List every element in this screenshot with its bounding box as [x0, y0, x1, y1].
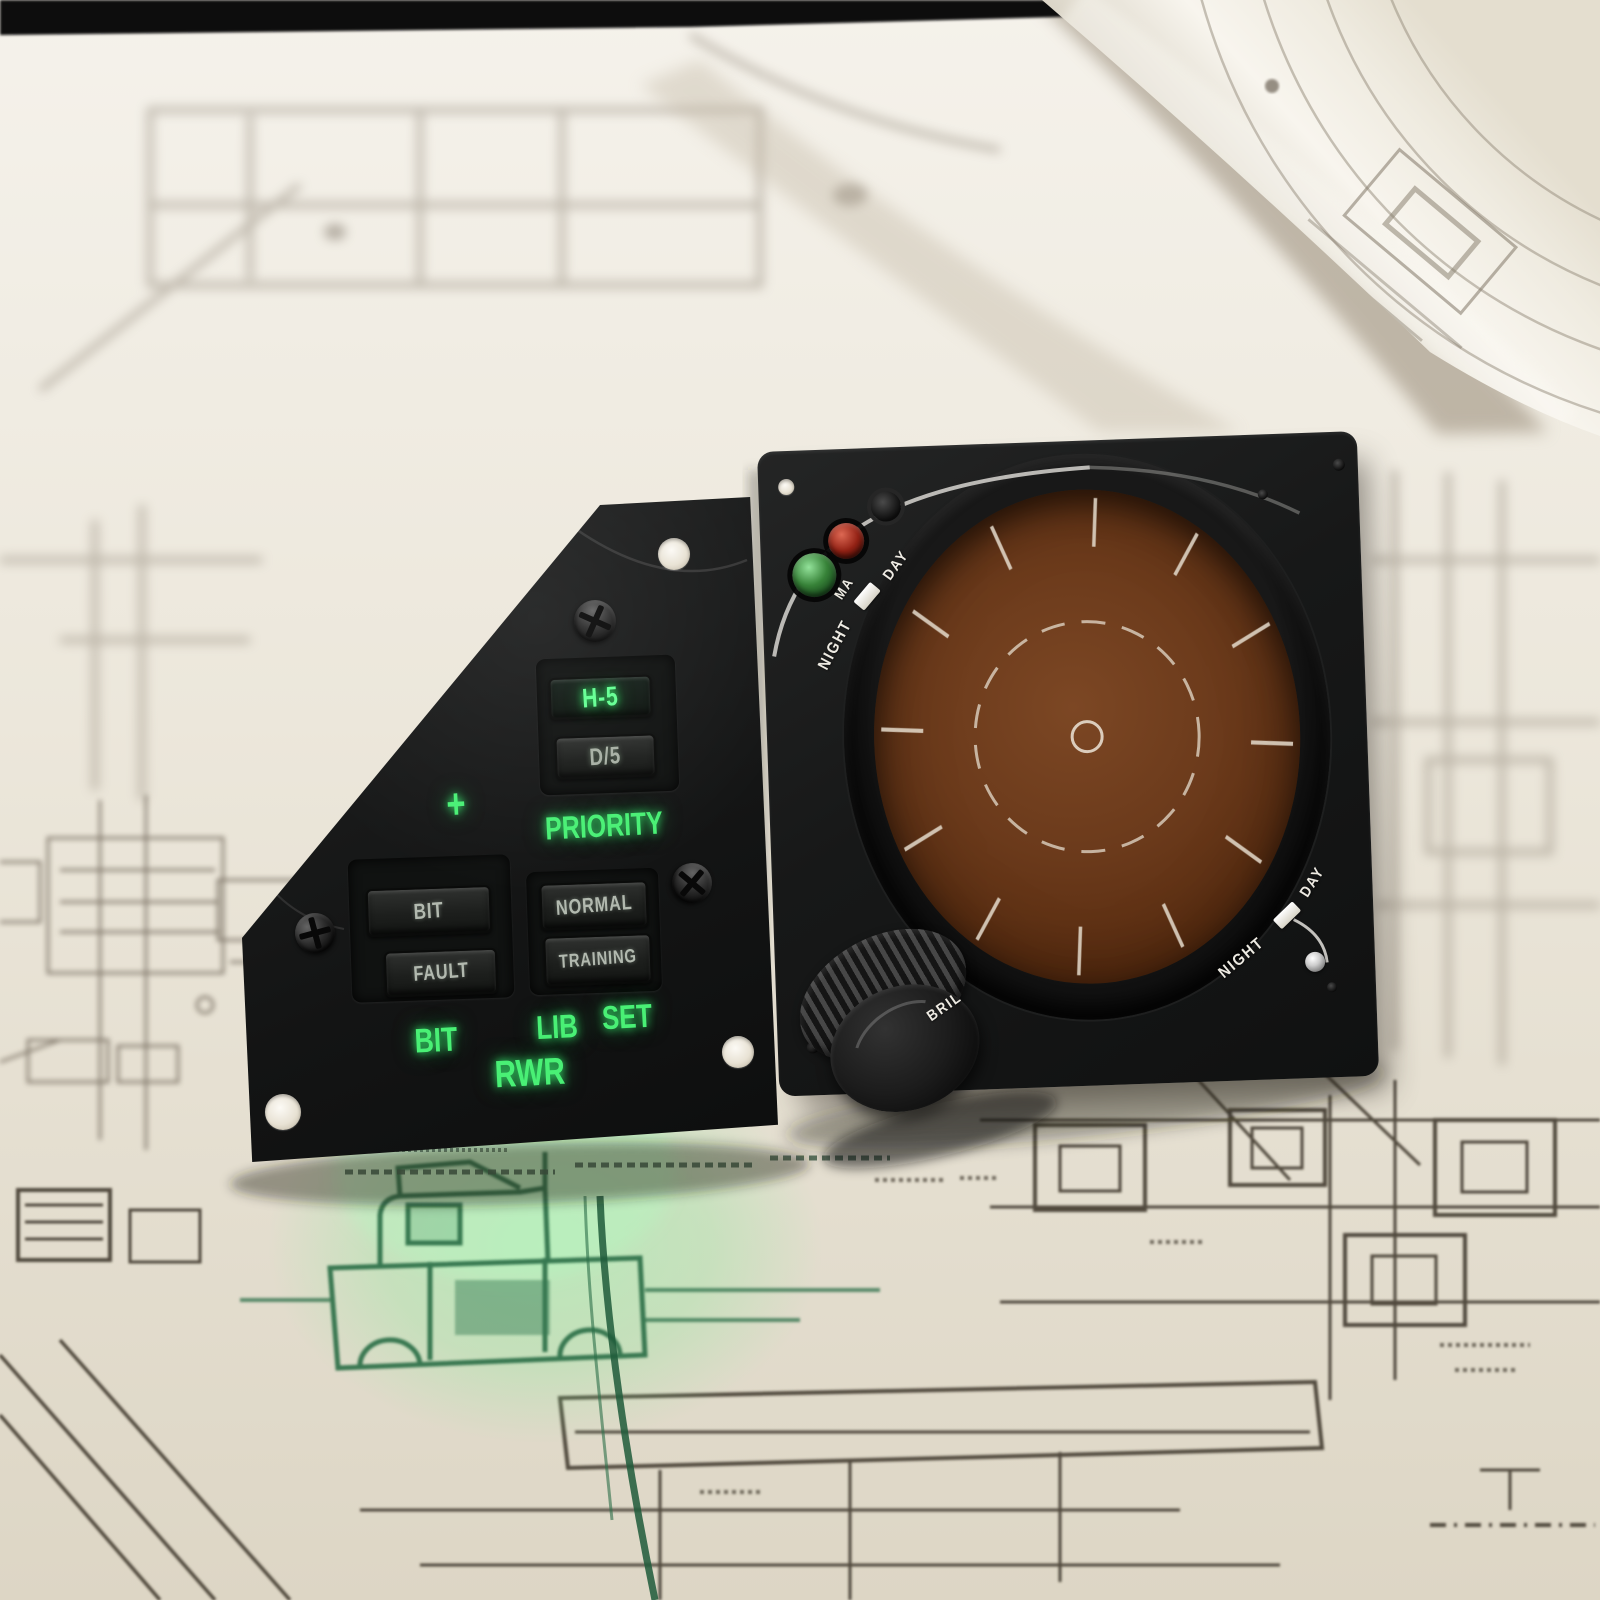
mounting-hole [658, 538, 690, 570]
phillips-screw [664, 855, 720, 911]
photo-scene: NIGHT MA DAY NIGHT DAY BRIL H-5 [0, 0, 1600, 1600]
secondary-display-value: D/5 [589, 741, 622, 771]
set-label: SET [601, 997, 653, 1038]
priority-display-value: H-5 [581, 680, 619, 714]
normal-training-recess: NORMAL TRAINING [526, 868, 662, 996]
bit-label: BIT [414, 1020, 459, 1061]
lib-label: LIB [535, 1007, 578, 1047]
bit-button[interactable]: BIT [366, 885, 493, 937]
normal-button[interactable]: NORMAL [539, 880, 649, 931]
priority-display-recess: H-5 D/5 [536, 655, 680, 796]
rwr-label: RWR [494, 1051, 566, 1098]
mounting-hole [265, 1094, 301, 1130]
azimuth-display-panel: NIGHT MA DAY NIGHT DAY BRIL [757, 431, 1379, 1097]
secondary-display-button[interactable]: D/5 [554, 733, 656, 779]
phillips-screw [567, 593, 622, 648]
bit-fault-recess: BIT FAULT [348, 854, 515, 1003]
training-button[interactable]: TRAINING [543, 933, 653, 987]
plus-marker: + [445, 780, 467, 829]
priority-label: PRIORITY [544, 804, 664, 847]
phillips-screw [291, 909, 340, 958]
priority-display-button[interactable]: H-5 [548, 674, 652, 720]
mounting-hole [722, 1036, 754, 1068]
fault-button[interactable]: FAULT [384, 948, 499, 998]
